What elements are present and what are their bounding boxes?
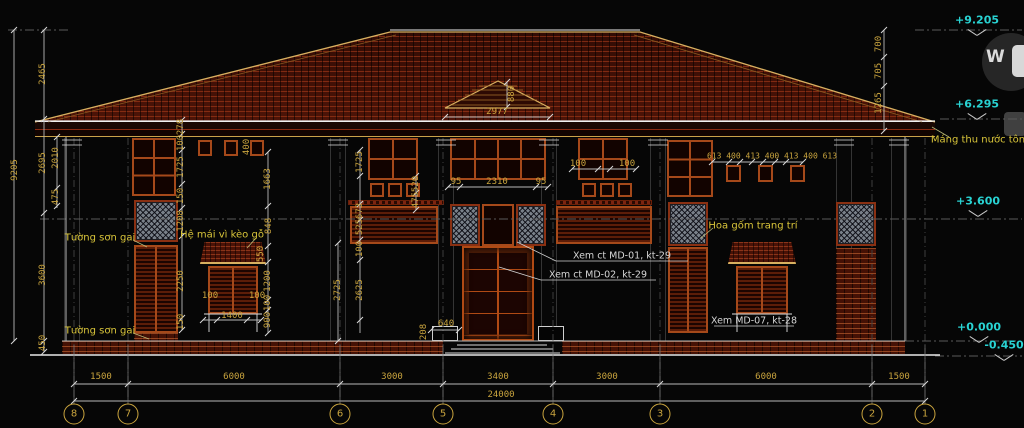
dim-label: 2977 — [486, 107, 508, 117]
dim-label: 1725 — [355, 151, 365, 173]
dim-label: 278 — [176, 119, 186, 135]
note-tuong-son-gai-upper: Tường sơn gai — [65, 233, 136, 244]
note-tuong-son-gai-lower: Tường sơn gai — [65, 326, 136, 337]
dim-label: 100 — [176, 135, 186, 151]
dim-label: 880 — [507, 86, 517, 102]
note-xem-md-07: Xem MD-07, kt-28 — [711, 316, 797, 327]
dim-label: 450 — [38, 335, 48, 351]
note-xem-ct-md-01: Xem ct MD-01, kt-29 — [573, 251, 671, 262]
dim-label: 100 — [570, 159, 586, 169]
level-label: +9.205 — [955, 14, 999, 27]
level-marker-icon — [969, 210, 987, 218]
dim-label: 1200 — [263, 270, 273, 292]
grid-bubble-8: 8 — [64, 404, 85, 425]
dim-label: 150 — [176, 314, 186, 330]
dim-label: 3400 — [487, 372, 509, 382]
dim-label: 2465 — [38, 63, 48, 85]
cad-elevation-drawing: W — [0, 0, 1024, 428]
dim-label: 100 — [619, 159, 635, 169]
dim-label: 100 — [202, 291, 218, 301]
level-label: +6.295 — [955, 98, 999, 111]
level-label: -0.450 — [984, 339, 1023, 352]
dim-label: 95 — [536, 177, 547, 187]
dim-label: 705 — [874, 63, 884, 79]
dim-label: 900 — [263, 312, 273, 328]
dim-label: 640 — [438, 319, 454, 329]
grid-bubble-5: 5 — [433, 404, 454, 425]
level-label: +0.000 — [957, 321, 1001, 334]
note-he-mai-vi-keo-go: Hệ mái vì kèo gỗ — [180, 230, 264, 241]
dim-label: 6000 — [755, 372, 777, 382]
level-marker-icon — [968, 29, 986, 37]
dim-label: 700 — [874, 36, 884, 52]
dim-label: 6000 — [223, 372, 245, 382]
note-hoa-gom-trang-tri: Hoa gốm trang trí — [708, 221, 797, 232]
note-mang-thu-nuoc-ton: Máng thu nước tôn — [931, 135, 1024, 146]
dim-label: 550 — [256, 246, 266, 262]
dim-label: 100 — [263, 295, 273, 311]
dim-label: 3000 — [381, 372, 403, 382]
level-label: +3.600 — [956, 195, 1000, 208]
dim-label: 1663 — [263, 168, 273, 190]
note-xem-ct-md-02: Xem ct MD-02, kt-29 — [549, 270, 647, 281]
dim-label: 2725 — [333, 279, 343, 301]
annotation-layer: 297788095231095100100613 400 413 400 413… — [0, 0, 1024, 428]
dim-label: 613 400 413 400 413 400 613 — [707, 152, 837, 161]
dim-label: 95 — [451, 177, 462, 187]
dim-label: 100 — [355, 241, 365, 257]
dim-label: 673 — [355, 203, 365, 219]
dim-label: 2625 — [355, 279, 365, 301]
level-marker-icon — [968, 113, 986, 121]
dim-label: 525 — [355, 219, 365, 235]
dim-label: 150 — [176, 188, 186, 204]
dim-label: 1265 — [874, 92, 884, 114]
dim-label: 475 — [51, 189, 61, 205]
dim-label: 520 — [411, 176, 421, 192]
dim-label: 2010 — [51, 147, 61, 169]
dim-label: 2695 — [38, 152, 48, 174]
grid-bubble-2: 2 — [862, 404, 883, 425]
dim-label: 848 — [264, 218, 274, 234]
dim-label: 208 — [419, 324, 429, 340]
grid-bubble-3: 3 — [650, 404, 671, 425]
dim-label: 1725 — [176, 156, 186, 178]
grid-bubble-4: 4 — [543, 404, 564, 425]
dim-label: 24000 — [487, 390, 514, 400]
dim-label: 1500 — [90, 372, 112, 382]
dim-label: 1400 — [221, 311, 243, 321]
grid-bubble-6: 6 — [330, 404, 351, 425]
grid-bubble-7: 7 — [118, 404, 139, 425]
dim-label: 475 — [411, 192, 421, 208]
dim-label: 9205 — [10, 159, 20, 181]
level-marker-icon — [995, 354, 1013, 362]
dim-label: 3600 — [38, 264, 48, 286]
dim-label: 3000 — [596, 372, 618, 382]
dim-label: 1500 — [888, 372, 910, 382]
dim-label: 400 — [242, 139, 252, 155]
grid-bubble-1: 1 — [915, 404, 936, 425]
dim-label: 2250 — [176, 270, 186, 292]
dim-label: 2310 — [486, 177, 508, 187]
